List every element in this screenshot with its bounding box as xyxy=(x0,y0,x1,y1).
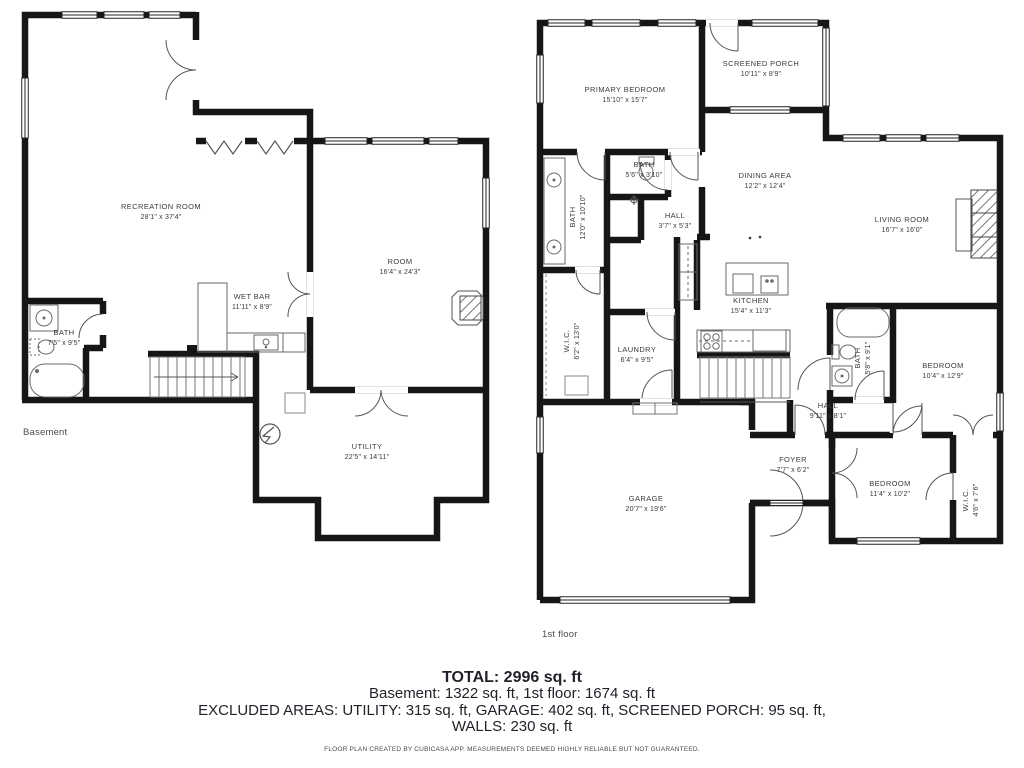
room-label-garage: GARAGE20'7" x 19'6" xyxy=(626,494,667,514)
floor-areas: Basement: 1322 sq. ft, 1st floor: 1674 s… xyxy=(0,686,1024,703)
room-label-bedroom-1: BEDROOM10'4" x 12'9" xyxy=(922,361,964,381)
room-label-small-hall: HALL3'7" x 5'3" xyxy=(659,211,692,231)
room-label-laundry: LAUNDRY6'4" x 9'5" xyxy=(618,345,657,365)
room-label-foyer: FOYER7'7" x 6'2" xyxy=(777,455,810,475)
front-door-panel xyxy=(770,501,803,506)
ceiling-dots xyxy=(749,236,762,240)
room-label-wet-bar: WET BAR11'11" x 8'9" xyxy=(232,292,272,312)
room-label-basement-bath: BATH7'5" x 9'5" xyxy=(48,328,81,348)
room-label-room: ROOM16'4" x 24'3" xyxy=(380,257,421,277)
room-label-kitchen: KITCHEN15'4" x 11'3" xyxy=(731,296,771,316)
basement-bath-fixtures xyxy=(30,305,84,397)
room-label-hall-bath: BATH5'8" x 9'1" xyxy=(853,342,873,375)
room-label-primary-wic: W.I.C.6'2" x 13'0" xyxy=(562,323,582,360)
basement-stairs xyxy=(150,357,245,397)
living-room-fireplace-icon xyxy=(956,190,997,258)
basement-wall-stub xyxy=(187,345,197,352)
room-label-primary-bath: BATH12'0" x 10'10" xyxy=(568,194,588,239)
room-label-recreation-room: RECREATION ROOM28'1" x 37'4" xyxy=(121,202,201,222)
basement-fireplace-icon xyxy=(452,291,483,325)
room-label-utility: UTILITY22'5" x 14'11" xyxy=(345,442,390,462)
total-area: TOTAL: 2996 sq. ft xyxy=(0,669,1024,686)
electrical-panel-icon xyxy=(260,424,280,444)
basement-windows xyxy=(22,12,490,228)
basement-floor-tag: Basement xyxy=(23,427,67,438)
vent-icon xyxy=(285,393,305,413)
room-label-hall: HALL9'11" x 8'1" xyxy=(810,401,846,421)
floor-plan-page: RECREATION ROOM28'1" x 37'4" ROOM16'4" x… xyxy=(0,0,1024,768)
basement-door-arcs xyxy=(79,40,408,416)
primary-bath-fixtures xyxy=(544,158,565,264)
room-label-dining-area: DINING AREA12'2" x 12'4" xyxy=(739,171,792,191)
room-label-screened-porch: SCREENED PORCH10'11" x 8'9" xyxy=(723,59,799,79)
walls-area: WALLS: 230 sq. ft xyxy=(0,719,1024,736)
disclaimer: FLOOR PLAN CREATED BY CUBICASA APP. MEAS… xyxy=(0,746,1024,753)
excluded-areas: EXCLUDED AREAS: UTILITY: 315 sq. ft, GAR… xyxy=(0,703,1024,720)
room-label-living-room: LIVING ROOM16'7" x 16'0" xyxy=(875,215,929,235)
room-label-small-bath: BATH5'6" x 3'10" xyxy=(626,160,663,180)
floor-plan-drawing xyxy=(0,0,1024,768)
first-floor-tag: 1st floor xyxy=(542,629,578,640)
area-summary: TOTAL: 2996 sq. ft Basement: 1322 sq. ft… xyxy=(0,669,1024,753)
room-label-primary-bedroom: PRIMARY BEDROOM15'10" x 15'7" xyxy=(585,85,666,105)
room-label-bedroom-2: BEDROOM11'4" x 10'2" xyxy=(869,479,911,499)
first-floor-stairs xyxy=(700,357,790,402)
room-label-wic-2: W.I.C.4'6" x 7'6" xyxy=(961,484,981,517)
